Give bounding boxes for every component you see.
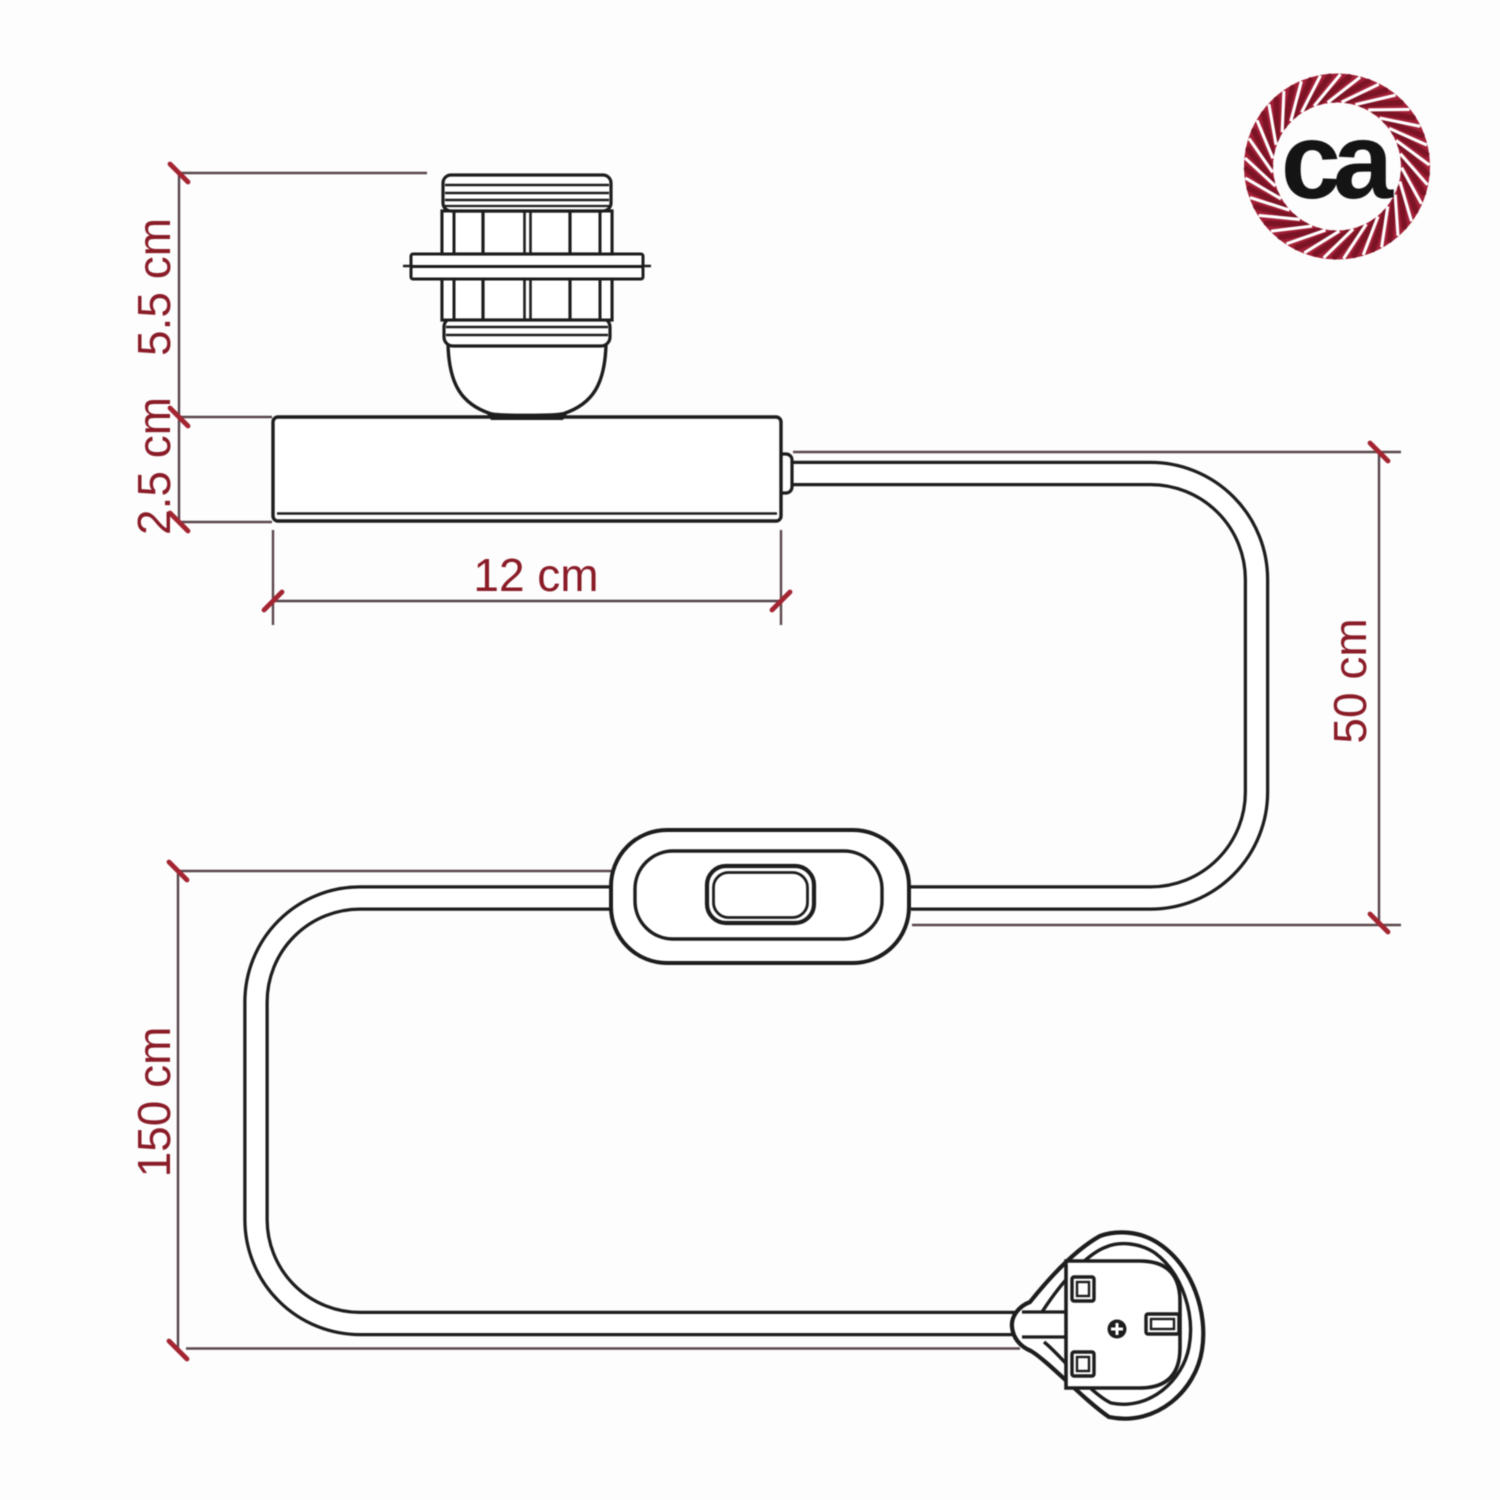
svg-text:50 cm: 50 cm xyxy=(1324,618,1376,743)
svg-text:2.5 cm: 2.5 cm xyxy=(128,397,180,535)
svg-text:12 cm: 12 cm xyxy=(473,549,598,601)
svg-text:150 cm: 150 cm xyxy=(128,1027,180,1178)
svg-text:ca: ca xyxy=(1281,100,1394,221)
svg-text:5.5 cm: 5.5 cm xyxy=(128,218,180,356)
